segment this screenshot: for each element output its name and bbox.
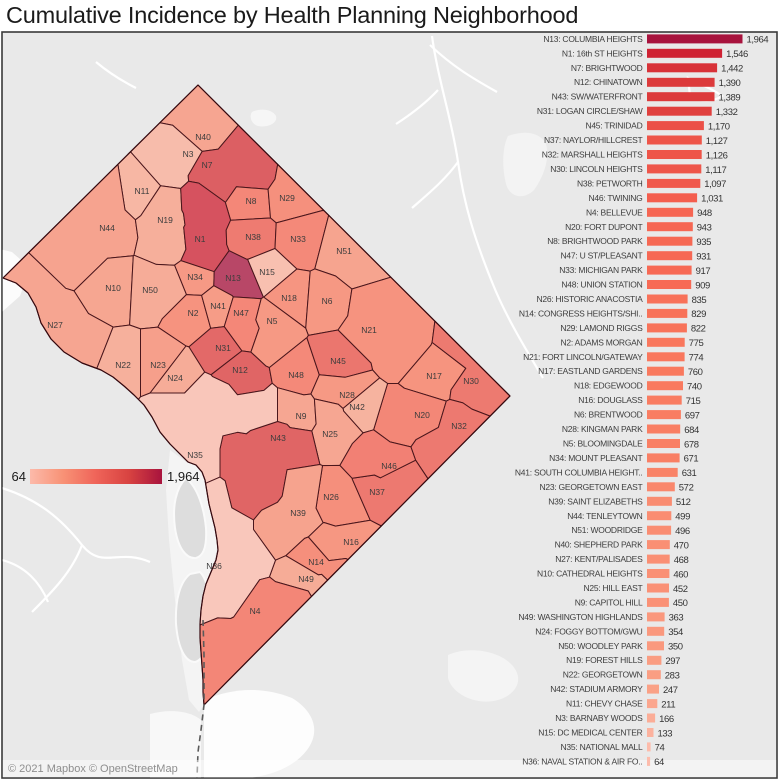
svg-text:N47: N47 bbox=[233, 308, 249, 318]
svg-text:829: 829 bbox=[691, 309, 706, 320]
svg-text:N25: N25 bbox=[322, 429, 338, 439]
svg-text:1,117: 1,117 bbox=[705, 165, 726, 176]
svg-text:N3: N3 bbox=[183, 149, 194, 159]
svg-text:N12: N12 bbox=[232, 365, 248, 375]
svg-text:1,389: 1,389 bbox=[719, 93, 741, 104]
svg-text:N10: N10 bbox=[105, 283, 121, 293]
svg-text:N20: N20 bbox=[414, 410, 430, 420]
svg-text:N39: N39 bbox=[290, 508, 306, 518]
svg-text:N13: COLUMBIA HEIGHTS: N13: COLUMBIA HEIGHTS bbox=[543, 34, 643, 44]
svg-text:1,546: 1,546 bbox=[726, 49, 748, 60]
svg-text:N18: EDGEWOOD: N18: EDGEWOOD bbox=[574, 381, 643, 391]
svg-text:452: 452 bbox=[673, 584, 688, 595]
svg-text:909: 909 bbox=[695, 280, 710, 291]
svg-text:N9: N9 bbox=[296, 411, 307, 421]
svg-text:678: 678 bbox=[684, 439, 699, 450]
svg-text:N11: CHEVY CHASE: N11: CHEVY CHASE bbox=[566, 699, 643, 709]
svg-text:N34: N34 bbox=[187, 272, 203, 282]
svg-text:N8: BRIGHTWOOD PARK: N8: BRIGHTWOOD PARK bbox=[547, 236, 643, 246]
svg-text:N43: SW/WATERFRONT: N43: SW/WATERFRONT bbox=[552, 92, 643, 102]
svg-text:N4: N4 bbox=[250, 606, 261, 616]
svg-text:N44: TENLEYTOWN: N44: TENLEYTOWN bbox=[567, 511, 642, 521]
svg-text:931: 931 bbox=[696, 251, 711, 262]
svg-text:1,126: 1,126 bbox=[706, 150, 728, 161]
svg-text:N34: MOUNT PLEASANT: N34: MOUNT PLEASANT bbox=[549, 453, 642, 463]
svg-text:N6: BRENTWOOD: N6: BRENTWOOD bbox=[574, 410, 643, 420]
svg-text:1,127: 1,127 bbox=[706, 136, 728, 147]
svg-text:N15: N15 bbox=[259, 267, 275, 277]
svg-text:N35: N35 bbox=[187, 450, 203, 460]
svg-text:N17: N17 bbox=[426, 371, 442, 381]
svg-text:N2: N2 bbox=[188, 308, 199, 318]
svg-text:N42: N42 bbox=[349, 402, 365, 412]
svg-text:N5: N5 bbox=[267, 316, 278, 326]
svg-text:N8: N8 bbox=[246, 196, 257, 206]
svg-text:N5: BLOOMINGDALE: N5: BLOOMINGDALE bbox=[563, 439, 643, 449]
svg-text:512: 512 bbox=[676, 497, 691, 508]
svg-text:822: 822 bbox=[691, 324, 706, 335]
svg-text:N16: DOUGLASS: N16: DOUGLASS bbox=[578, 395, 643, 405]
svg-text:N38: N38 bbox=[245, 232, 261, 242]
svg-text:499: 499 bbox=[675, 512, 690, 523]
svg-text:N43: N43 bbox=[270, 433, 286, 443]
svg-text:N14: N14 bbox=[308, 557, 324, 567]
svg-text:460: 460 bbox=[673, 569, 688, 580]
svg-text:835: 835 bbox=[692, 295, 707, 306]
svg-text:572: 572 bbox=[679, 483, 694, 494]
svg-text:N27: KENT/PALISADES: N27: KENT/PALISADES bbox=[555, 554, 643, 564]
svg-text:64: 64 bbox=[654, 757, 664, 768]
svg-text:N9: CAPITOL HILL: N9: CAPITOL HILL bbox=[575, 597, 643, 607]
svg-text:N32: MARSHALL HEIGHTS: N32: MARSHALL HEIGHTS bbox=[542, 150, 643, 160]
svg-text:N31: LOGAN CIRCLE/SHAW: N31: LOGAN CIRCLE/SHAW bbox=[537, 106, 643, 116]
svg-text:211: 211 bbox=[661, 699, 675, 710]
svg-text:64: 64 bbox=[12, 469, 26, 484]
svg-text:N23: N23 bbox=[150, 360, 166, 370]
svg-text:671: 671 bbox=[684, 454, 699, 465]
svg-text:N30: N30 bbox=[463, 376, 479, 386]
svg-text:N42: STADIUM ARMORY: N42: STADIUM ARMORY bbox=[550, 684, 643, 694]
svg-text:1,170: 1,170 bbox=[708, 121, 730, 132]
svg-text:N36: NAVAL STATION & AIR FO..: N36: NAVAL STATION & AIR FO.. bbox=[522, 756, 642, 766]
svg-text:N30: LINCOLN HEIGHTS: N30: LINCOLN HEIGHTS bbox=[550, 164, 643, 174]
svg-text:948: 948 bbox=[697, 208, 712, 219]
svg-text:1,964: 1,964 bbox=[167, 469, 200, 484]
svg-text:N14: CONGRESS HEIGHTS/SHI..: N14: CONGRESS HEIGHTS/SHI.. bbox=[519, 308, 643, 318]
svg-text:N44: N44 bbox=[99, 223, 115, 233]
svg-text:297: 297 bbox=[665, 656, 680, 667]
svg-text:631: 631 bbox=[682, 468, 697, 479]
svg-text:N22: N22 bbox=[115, 360, 131, 370]
svg-text:N37: NAYLOR/HILLCREST: N37: NAYLOR/HILLCREST bbox=[544, 135, 643, 145]
svg-text:N7: N7 bbox=[202, 160, 213, 170]
svg-text:133: 133 bbox=[658, 728, 673, 739]
svg-text:N20: FORT DUPONT: N20: FORT DUPONT bbox=[565, 222, 642, 232]
svg-text:N50: WOODLEY PARK: N50: WOODLEY PARK bbox=[558, 641, 643, 651]
svg-text:N49: N49 bbox=[298, 574, 314, 584]
svg-text:N29: N29 bbox=[279, 193, 295, 203]
svg-text:N17: EASTLAND GARDENS: N17: EASTLAND GARDENS bbox=[538, 366, 643, 376]
svg-text:N28: KINGMAN PARK: N28: KINGMAN PARK bbox=[562, 424, 643, 434]
svg-text:N6: N6 bbox=[322, 296, 333, 306]
svg-text:760: 760 bbox=[688, 367, 703, 378]
svg-text:N12: CHINATOWN: N12: CHINATOWN bbox=[574, 77, 643, 87]
svg-text:N16: N16 bbox=[343, 537, 359, 547]
svg-text:N21: N21 bbox=[361, 325, 377, 335]
svg-text:697: 697 bbox=[685, 410, 700, 421]
svg-text:N51: N51 bbox=[336, 246, 352, 256]
svg-text:N41: SOUTH COLUMBIA HEIGHT..: N41: SOUTH COLUMBIA HEIGHT.. bbox=[515, 467, 643, 477]
svg-text:N39: SAINT ELIZABETHS: N39: SAINT ELIZABETHS bbox=[548, 496, 643, 506]
svg-text:283: 283 bbox=[665, 671, 680, 682]
svg-text:N31: N31 bbox=[215, 343, 231, 353]
svg-text:N33: N33 bbox=[290, 234, 306, 244]
svg-text:N40: N40 bbox=[195, 132, 211, 142]
svg-text:N22: GEORGETOWN: N22: GEORGETOWN bbox=[563, 670, 643, 680]
svg-text:N29: LAMOND RIGGS: N29: LAMOND RIGGS bbox=[560, 323, 643, 333]
svg-text:N26: N26 bbox=[323, 492, 339, 502]
svg-text:N19: N19 bbox=[157, 215, 173, 225]
svg-text:N45: TRINIDAD: N45: TRINIDAD bbox=[585, 121, 642, 131]
svg-text:N45: N45 bbox=[330, 356, 346, 366]
svg-text:N51: WOODRIDGE: N51: WOODRIDGE bbox=[571, 525, 643, 535]
svg-text:N25: HILL EAST: N25: HILL EAST bbox=[583, 583, 642, 593]
svg-text:N11: N11 bbox=[135, 186, 150, 196]
svg-text:N40: SHEPHERD PARK: N40: SHEPHERD PARK bbox=[555, 540, 644, 550]
svg-text:1,964: 1,964 bbox=[747, 35, 769, 46]
svg-text:N47: U ST/PLEASANT: N47: U ST/PLEASANT bbox=[561, 251, 643, 261]
svg-text:774: 774 bbox=[689, 353, 704, 364]
svg-text:N24: FOGGY BOTTOM/GWU: N24: FOGGY BOTTOM/GWU bbox=[535, 626, 642, 636]
svg-text:N41: N41 bbox=[210, 301, 226, 311]
svg-text:1,442: 1,442 bbox=[721, 64, 743, 75]
svg-text:1,097: 1,097 bbox=[704, 179, 726, 190]
svg-text:N18: N18 bbox=[281, 293, 297, 303]
svg-text:N26: HISTORIC ANACOSTIA: N26: HISTORIC ANACOSTIA bbox=[536, 294, 643, 304]
svg-text:N46: TWINING: N46: TWINING bbox=[589, 193, 643, 203]
svg-text:935: 935 bbox=[696, 237, 711, 248]
svg-text:N1: 16th ST HEIGHTS: N1: 16th ST HEIGHTS bbox=[562, 48, 643, 58]
svg-text:N23: GEORGETOWN EAST: N23: GEORGETOWN EAST bbox=[539, 482, 642, 492]
svg-text:N13: N13 bbox=[225, 273, 241, 283]
svg-text:496: 496 bbox=[675, 526, 690, 537]
svg-text:N46: N46 bbox=[381, 461, 397, 471]
svg-text:© 2021 Mapbox © OpenStreetMap: © 2021 Mapbox © OpenStreetMap bbox=[8, 763, 178, 775]
svg-text:N49: WASHINGTON HIGHLANDS: N49: WASHINGTON HIGHLANDS bbox=[518, 612, 643, 622]
svg-text:917: 917 bbox=[696, 266, 711, 277]
svg-text:N4: BELLEVUE: N4: BELLEVUE bbox=[586, 207, 643, 217]
svg-text:740: 740 bbox=[687, 382, 702, 393]
svg-text:363: 363 bbox=[669, 613, 684, 624]
svg-text:N27: N27 bbox=[47, 320, 63, 330]
svg-text:N24: N24 bbox=[167, 373, 183, 383]
svg-text:1,332: 1,332 bbox=[716, 107, 738, 118]
svg-text:N19: FOREST HILLS: N19: FOREST HILLS bbox=[566, 655, 643, 665]
svg-text:N21: FORT LINCOLN/GATEWAY: N21: FORT LINCOLN/GATEWAY bbox=[523, 352, 643, 362]
svg-text:N3: BARNABY WOODS: N3: BARNABY WOODS bbox=[555, 713, 643, 723]
svg-text:N35: NATIONAL MALL: N35: NATIONAL MALL bbox=[561, 742, 643, 752]
svg-text:N2: ADAMS MORGAN: N2: ADAMS MORGAN bbox=[561, 337, 643, 347]
svg-text:N32: N32 bbox=[451, 421, 467, 431]
svg-text:470: 470 bbox=[674, 540, 689, 551]
svg-text:247: 247 bbox=[663, 685, 678, 696]
svg-text:166: 166 bbox=[659, 714, 674, 725]
svg-text:N28: N28 bbox=[339, 390, 355, 400]
svg-text:354: 354 bbox=[668, 627, 683, 638]
svg-text:684: 684 bbox=[684, 425, 699, 436]
svg-text:N10: CATHEDRAL HEIGHTS: N10: CATHEDRAL HEIGHTS bbox=[537, 569, 643, 579]
svg-text:450: 450 bbox=[673, 598, 688, 609]
svg-text:N7: BRIGHTWOOD: N7: BRIGHTWOOD bbox=[571, 63, 643, 73]
svg-text:N38: PETWORTH: N38: PETWORTH bbox=[577, 178, 643, 188]
svg-text:N33: MICHIGAN PARK: N33: MICHIGAN PARK bbox=[559, 265, 643, 275]
svg-text:350: 350 bbox=[668, 642, 683, 653]
svg-text:74: 74 bbox=[655, 743, 665, 754]
svg-text:775: 775 bbox=[689, 338, 704, 349]
svg-text:N1: N1 bbox=[195, 234, 206, 244]
svg-text:715: 715 bbox=[686, 396, 701, 407]
svg-text:943: 943 bbox=[697, 223, 712, 234]
svg-text:1,390: 1,390 bbox=[719, 78, 741, 89]
svg-text:N15: DC MEDICAL CENTER: N15: DC MEDICAL CENTER bbox=[538, 728, 642, 738]
svg-text:N50: N50 bbox=[142, 285, 158, 295]
svg-text:468: 468 bbox=[674, 555, 689, 566]
svg-text:N48: UNION STATION: N48: UNION STATION bbox=[561, 280, 642, 290]
svg-text:N37: N37 bbox=[369, 487, 385, 497]
svg-text:N48: N48 bbox=[288, 370, 304, 380]
svg-text:1,031: 1,031 bbox=[701, 194, 723, 205]
